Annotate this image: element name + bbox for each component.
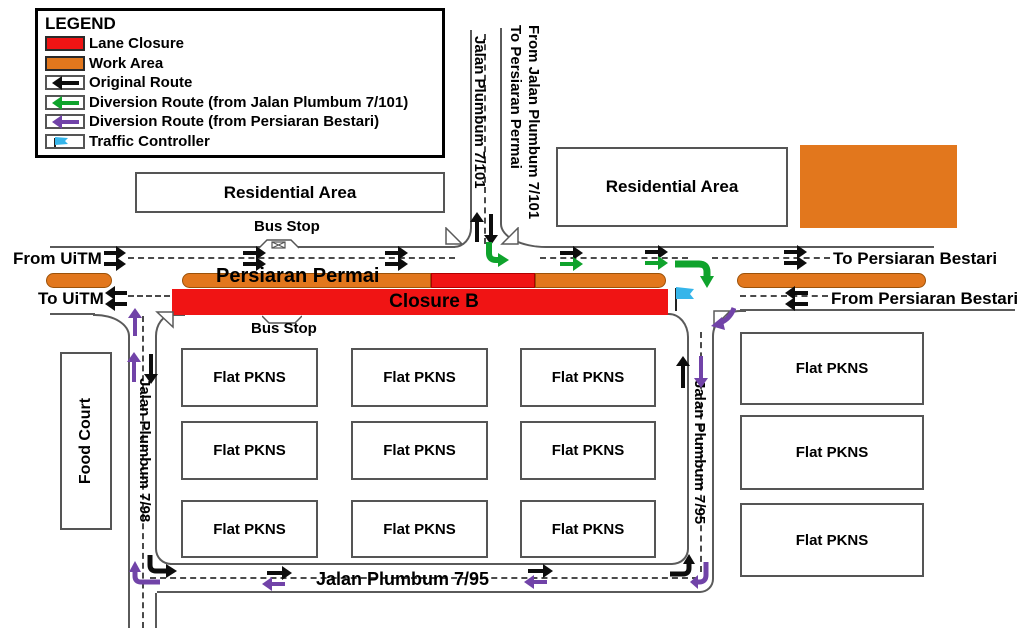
original-route-arrow	[560, 251, 573, 255]
diversion-7101-turn-arrow	[484, 242, 510, 268]
flat-pkns-label: Flat PKNS	[383, 442, 456, 459]
diversion-bestari-arrow	[133, 318, 137, 336]
lane-closure-strip	[431, 273, 535, 288]
residential-area-right: Residential Area	[556, 147, 788, 227]
closure-b-label: Closure B	[389, 291, 479, 313]
traffic-island	[155, 310, 176, 329]
junction-note: From Jalan Plumbum 7/101 To Persiaran Pe…	[506, 25, 542, 219]
flat-pkns-building: Flat PKNS	[351, 348, 488, 407]
original-route-arrow	[115, 291, 127, 295]
legend-label: Diversion Route (from Persiaran Bestari)	[89, 113, 379, 130]
junction-note-line2: To Persiaran Permai	[506, 25, 524, 219]
from-bestari-label: From Persiaran Bestari	[831, 289, 1018, 309]
legend-item-original-route: Original Route	[45, 73, 442, 93]
original-route-turn-arrow	[146, 555, 180, 578]
flat-pkns-building: Flat PKNS	[520, 421, 656, 480]
legend-item-work-area: Work Area	[45, 54, 442, 74]
original-route-arrow	[795, 302, 808, 306]
original-route-arrow	[104, 262, 116, 266]
flat-pkns-label: Flat PKNS	[552, 369, 625, 386]
original-route-arrow	[104, 251, 116, 255]
legend-label: Original Route	[89, 74, 192, 91]
road-edge	[170, 563, 669, 565]
legend-label: Work Area	[89, 55, 163, 72]
original-route-arrow	[385, 251, 398, 255]
legend-label: Traffic Controller	[89, 133, 210, 150]
diversion-7101-arrow-icon	[45, 95, 85, 110]
jp7-98-road-label: Jalan Plumbum 7/98	[136, 378, 153, 522]
bus-stop-label-bottom: Bus Stop	[251, 320, 317, 337]
road-edge	[155, 336, 157, 548]
original-route-arrow	[115, 302, 127, 306]
flat-pkns-building: Flat PKNS	[740, 415, 924, 490]
traffic-controller-icon	[45, 134, 85, 149]
legend-item-diversion-7101: Diversion Route (from Jalan Plumbum 7/10…	[45, 93, 442, 113]
road-edge	[157, 591, 700, 593]
flat-pkns-label: Flat PKNS	[552, 442, 625, 459]
road-edge	[740, 309, 1015, 311]
residential-area-left: Residential Area	[135, 172, 445, 213]
residential-area-label: Residential Area	[606, 177, 739, 197]
to-uitm-label: To UiTM	[38, 289, 104, 309]
original-route-turn-arrow	[670, 554, 698, 578]
flat-pkns-building: Flat PKNS	[351, 500, 488, 558]
work-area-strip	[737, 273, 926, 288]
work-area-swatch	[45, 56, 85, 71]
diversion-bestari-arrow	[534, 580, 547, 584]
legend-title: LEGEND	[45, 14, 442, 34]
road-edge	[712, 336, 714, 574]
traffic-controller-flag-icon	[671, 283, 697, 313]
from-uitm-label: From UiTM	[13, 249, 102, 269]
diversion-bestari-arrow-icon	[45, 114, 85, 129]
original-route-arrow	[475, 222, 479, 242]
diversion-7101-arrow	[645, 261, 658, 265]
work-area-block	[800, 145, 957, 228]
flat-pkns-label: Flat PKNS	[213, 369, 286, 386]
road-edge	[50, 313, 95, 315]
jp7-95-road-label: Jalan Plumbum 7/95	[691, 380, 708, 524]
work-area-strip	[46, 273, 112, 288]
closure-b-band: Closure B	[172, 289, 668, 315]
junction-note-line1: From Jalan Plumbum 7/101	[524, 25, 542, 219]
original-route-arrow	[528, 569, 543, 573]
road-edge	[546, 246, 934, 248]
diversion-bestari-turn-arrow	[710, 306, 736, 332]
flat-pkns-building: Flat PKNS	[520, 348, 656, 407]
legend-item-lane-closure: Lane Closure	[45, 34, 442, 54]
food-court-building: Food Court	[60, 352, 112, 530]
road-edge	[500, 28, 502, 204]
flat-pkns-label: Flat PKNS	[383, 521, 456, 538]
work-area-strip	[535, 273, 666, 288]
flat-pkns-label: Flat PKNS	[796, 532, 869, 549]
flat-pkns-building: Flat PKNS	[740, 332, 924, 405]
flat-pkns-label: Flat PKNS	[552, 521, 625, 538]
diversion-bestari-arrow	[699, 356, 703, 378]
food-court-label: Food Court	[77, 398, 95, 484]
legend: LEGEND Lane Closure Work Area Original R…	[35, 8, 445, 158]
flat-pkns-label: Flat PKNS	[383, 369, 456, 386]
legend-label: Diversion Route (from Jalan Plumbum 7/10…	[89, 94, 408, 111]
original-route-arrow	[149, 354, 153, 374]
jp7-101-road-label: Jalan Plumbum 7/101	[471, 36, 488, 189]
original-route-arrow	[385, 262, 398, 266]
traffic-diversion-diagram: Closure B Persiaran Permai Bus Stop Bus …	[0, 0, 1024, 628]
road-edge	[155, 593, 157, 628]
flat-pkns-building: Flat PKNS	[520, 500, 656, 558]
original-route-arrow	[645, 250, 658, 254]
flat-pkns-building: Flat PKNS	[181, 348, 318, 407]
original-route-arrow	[681, 366, 685, 388]
legend-item-traffic-controller: Traffic Controller	[45, 132, 442, 152]
traffic-island	[444, 227, 464, 246]
residential-area-label: Residential Area	[224, 183, 357, 203]
diversion-bestari-arrow	[132, 362, 136, 382]
flat-pkns-building: Flat PKNS	[181, 421, 318, 480]
flat-pkns-label: Flat PKNS	[796, 444, 869, 461]
original-route-arrow	[795, 291, 808, 295]
original-route-arrow	[784, 261, 797, 265]
flat-pkns-building: Flat PKNS	[740, 503, 924, 577]
flat-pkns-building: Flat PKNS	[351, 421, 488, 480]
flat-pkns-label: Flat PKNS	[213, 521, 286, 538]
original-route-arrow	[489, 214, 493, 235]
diversion-7101-arrow	[560, 262, 573, 266]
original-route-arrow	[784, 250, 797, 254]
legend-item-diversion-bestari: Diversion Route (from Persiaran Bestari)	[45, 112, 442, 132]
road-edge	[687, 337, 689, 547]
lane-closure-swatch	[45, 36, 85, 51]
lane-dash	[712, 257, 830, 259]
road-edge	[50, 246, 455, 248]
flat-pkns-building: Flat PKNS	[181, 500, 318, 558]
original-route-arrow	[267, 571, 282, 575]
original-route-arrow	[243, 251, 256, 255]
legend-label: Lane Closure	[89, 35, 184, 52]
persiaran-permai-label: Persiaran Permai	[216, 265, 379, 288]
jp7-95-bottom-road-label: Jalan Plumbum 7/95	[316, 569, 489, 590]
to-bestari-label: To Persiaran Bestari	[833, 249, 997, 269]
flat-pkns-label: Flat PKNS	[213, 442, 286, 459]
original-route-arrow-icon	[45, 75, 85, 90]
flat-pkns-label: Flat PKNS	[796, 360, 869, 377]
bus-stop-label-top: Bus Stop	[254, 218, 320, 235]
diversion-bestari-arrow	[272, 582, 285, 586]
lane-dash	[740, 295, 828, 297]
lane-dash	[128, 295, 170, 297]
